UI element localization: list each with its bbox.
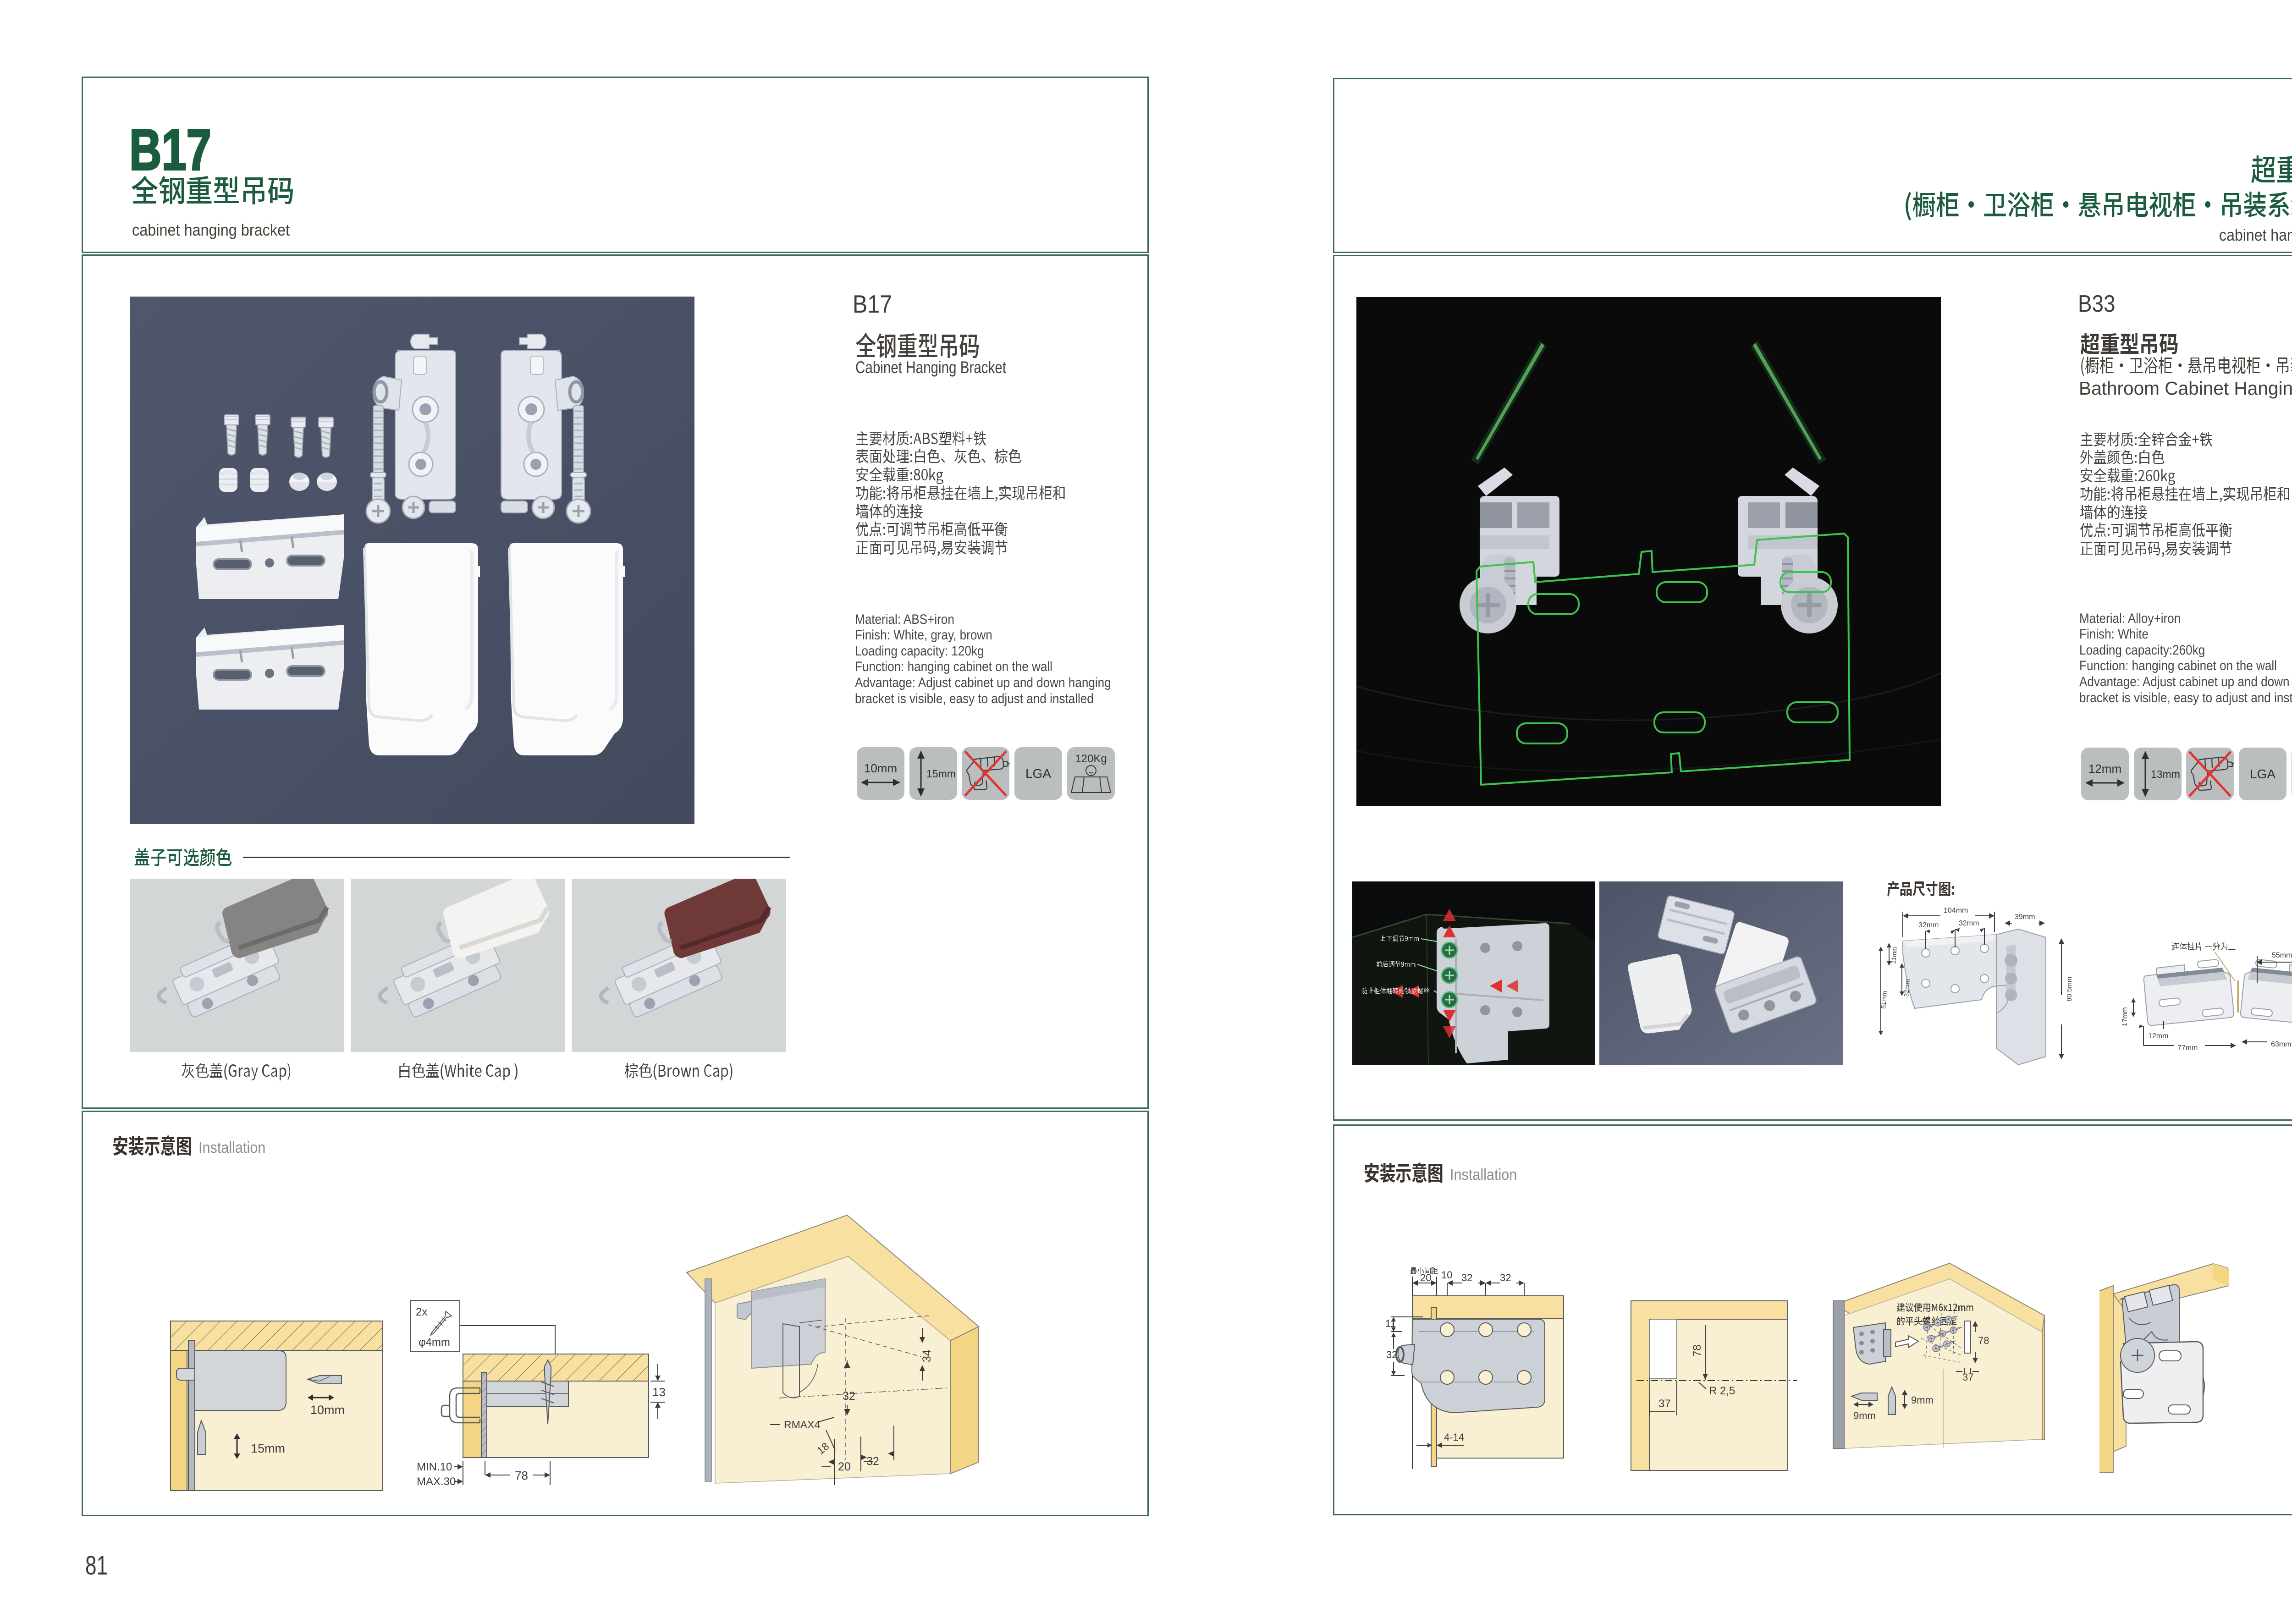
svg-text:15mm: 15mm xyxy=(926,768,956,780)
svg-text:20: 20 xyxy=(1420,1272,1431,1283)
svg-text:17mm: 17mm xyxy=(2121,1007,2129,1026)
svg-text:MAX.30: MAX.30 xyxy=(417,1475,456,1488)
svg-text:10mm: 10mm xyxy=(310,1403,345,1417)
svg-text:120Kg: 120Kg xyxy=(1075,753,1107,765)
svg-text:2x: 2x xyxy=(416,1306,427,1318)
svg-text:20: 20 xyxy=(838,1460,851,1473)
svg-text:9mm: 9mm xyxy=(1853,1410,1876,1421)
svg-text:LGA: LGA xyxy=(1025,766,1051,781)
svg-text:39mm: 39mm xyxy=(2015,913,2035,921)
svg-text:32: 32 xyxy=(1500,1272,1511,1283)
svg-text:32mm: 32mm xyxy=(1902,979,1911,997)
svg-text:34: 34 xyxy=(920,1349,933,1362)
svg-text:MIN.10: MIN.10 xyxy=(417,1461,452,1473)
svg-text:12mm: 12mm xyxy=(2088,762,2121,776)
svg-text:13mm: 13mm xyxy=(2151,768,2180,780)
svg-text:104mm: 104mm xyxy=(1944,907,1968,914)
svg-text:φ4mm: φ4mm xyxy=(419,1336,450,1349)
svg-text:LGA: LGA xyxy=(2250,767,2275,781)
svg-text:12mm: 12mm xyxy=(2148,1032,2168,1040)
svg-text:RMAX4: RMAX4 xyxy=(784,1419,820,1431)
svg-text:4-14: 4-14 xyxy=(1444,1431,1464,1443)
svg-text:R 2,5: R 2,5 xyxy=(1709,1385,1735,1397)
svg-text:78: 78 xyxy=(1978,1335,1989,1346)
svg-text:55mm: 55mm xyxy=(2272,952,2292,959)
svg-text:80.5mm: 80.5mm xyxy=(2066,977,2073,1002)
svg-text:10mm: 10mm xyxy=(864,761,897,775)
svg-text:78: 78 xyxy=(515,1469,528,1482)
svg-text:78: 78 xyxy=(1691,1344,1703,1357)
svg-text:32mm: 32mm xyxy=(1918,921,1939,929)
svg-text:32mm: 32mm xyxy=(1959,919,1979,927)
svg-text:63mm: 63mm xyxy=(2271,1040,2291,1048)
svg-text:37: 37 xyxy=(1658,1398,1671,1410)
svg-text:15mm: 15mm xyxy=(251,1442,285,1455)
svg-text:32: 32 xyxy=(843,1390,855,1403)
svg-text:77mm: 77mm xyxy=(2177,1044,2198,1052)
svg-text:32: 32 xyxy=(1461,1272,1472,1283)
svg-text:10: 10 xyxy=(1441,1269,1452,1281)
svg-text:9mm: 9mm xyxy=(1911,1394,1934,1406)
svg-text:32: 32 xyxy=(1386,1349,1397,1360)
svg-text:13: 13 xyxy=(652,1385,666,1399)
